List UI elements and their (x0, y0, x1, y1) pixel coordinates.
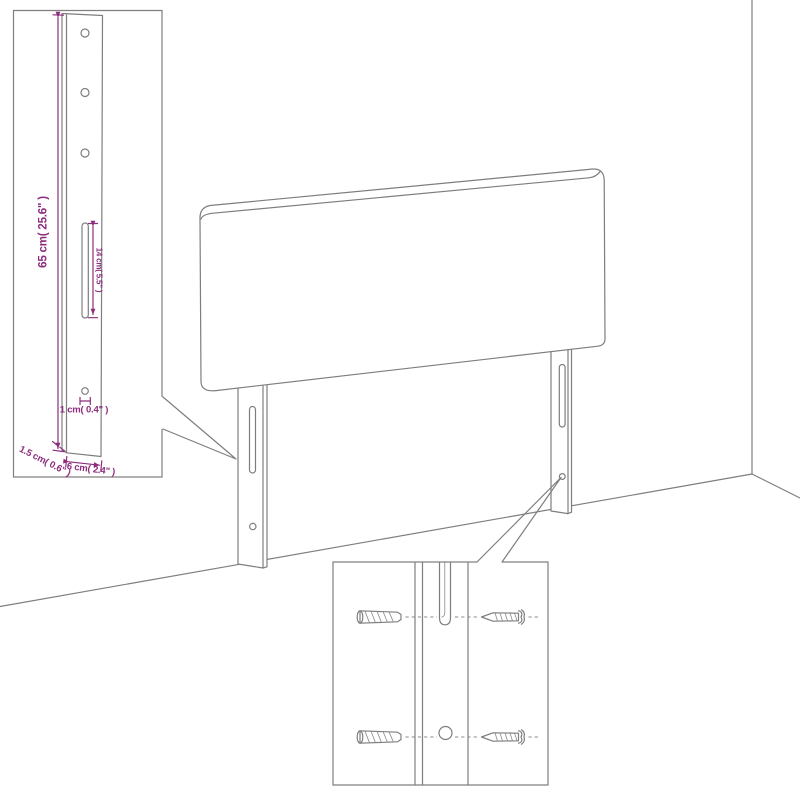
alignment-dashes (406, 617, 541, 737)
dim-thickness-label: 1.5 cm( 0.6" ) (17, 444, 72, 479)
headboard-panel (200, 169, 605, 391)
headboard-front-face (200, 169, 605, 391)
wall-plug-body (360, 611, 401, 623)
mounting-inset-border (333, 562, 548, 785)
leg-detail-slot (82, 223, 88, 318)
leg-detail-hole-3 (81, 149, 89, 157)
leg-detail-hole-2 (81, 89, 89, 97)
product-diagram: 65 cm( 25.6" ) 14 cm( 5.5" ) 1 cm( 0.4" … (0, 0, 800, 800)
mounting-hole (439, 727, 452, 740)
dim-width-label: 6 cm( 2.4" ) (66, 461, 116, 478)
mounting-leg-strip (415, 563, 468, 785)
wall-plug-icon-top (357, 611, 401, 623)
dim-hole-bracket (80, 398, 90, 405)
leg-detail-drawing (62, 14, 103, 457)
callout-wedge-to-left-leg (163, 397, 236, 459)
mounting-leg-edges (415, 563, 468, 785)
dim-height-label: 65 cm( 25.6" ) (38, 196, 50, 268)
screw-head (519, 730, 525, 744)
dim-height: 65 cm( 25.6" ) (38, 15, 64, 452)
screw-head (519, 610, 525, 624)
mounting-slot-inner-line (442, 563, 445, 618)
headboard-left-leg (238, 384, 267, 569)
floor-line-right (752, 474, 800, 498)
dim-thickness-ticks (53, 442, 66, 452)
screw-icon-top (482, 610, 525, 624)
wall-plug-body (360, 731, 401, 743)
leg-detail-bottom-hole (82, 388, 89, 395)
dim-width: 6 cm( 2.4" ) (66, 457, 116, 478)
dim-thickness: 1.5 cm( 0.6" ) (17, 442, 72, 480)
headboard-diagram-canvas: 65 cm( 25.6" ) 14 cm( 5.5" ) 1 cm( 0.4" … (0, 0, 800, 800)
screw-icon-bottom (482, 730, 525, 744)
dim-hole-label: 1 cm( 0.4" ) (60, 405, 109, 416)
dim-slot-label: 14 cm( 5.5" ) (95, 248, 104, 293)
leg-detail-hole-1 (81, 29, 89, 37)
floor-line-left (0, 474, 752, 607)
wall-plug-icon-bottom (357, 731, 401, 743)
leg-detail-inset: 65 cm( 25.6" ) 14 cm( 5.5" ) 1 cm( 0.4" … (14, 11, 163, 480)
mounting-detail-inset (333, 562, 548, 785)
